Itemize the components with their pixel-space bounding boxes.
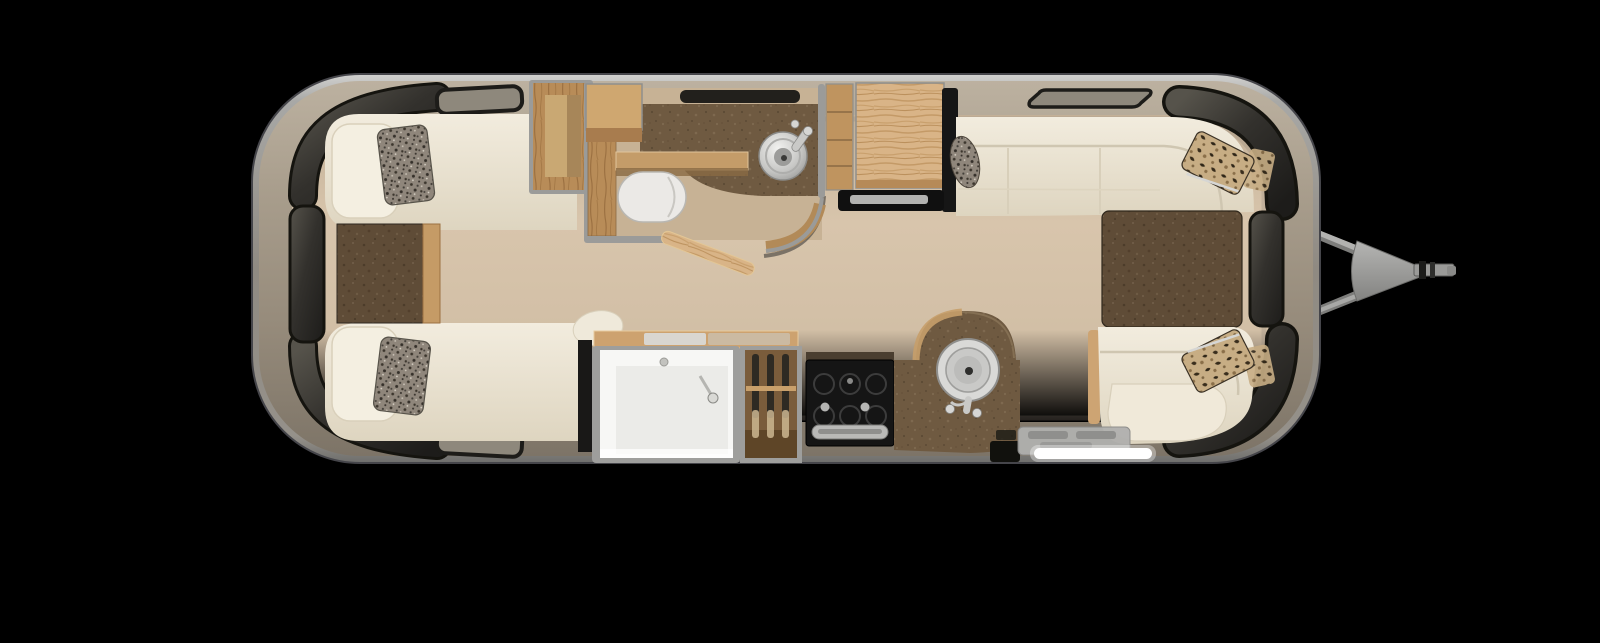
kitchen-faucet-handle-b xyxy=(973,409,982,418)
stove-emblem xyxy=(847,378,853,384)
jack-detail xyxy=(1430,262,1435,278)
bathroom-bottom-wall xyxy=(584,236,668,243)
nightstand-wood-edge xyxy=(423,224,440,323)
coupler-ball-mount xyxy=(1447,266,1456,275)
stove-knob-1 xyxy=(821,403,830,412)
bathroom-cabinet-face xyxy=(586,128,642,142)
roof-vent-rear-top xyxy=(436,86,522,114)
shower-drain xyxy=(660,358,668,366)
closet-brush-tip-3 xyxy=(782,410,789,438)
front-center-window xyxy=(1250,212,1283,326)
bathroom-right-wall xyxy=(818,84,825,198)
speckle-pillow-bottom xyxy=(373,336,432,416)
pantry-shelves xyxy=(826,84,853,190)
counter-glass-panel xyxy=(708,333,790,345)
lavatory-drain xyxy=(781,155,787,161)
shower-wand-head xyxy=(708,393,718,403)
roof-vent-front xyxy=(1029,90,1151,107)
bathroom-wood-shelf xyxy=(616,152,748,170)
floor-mat-small xyxy=(996,430,1016,440)
kitchen-faucet-handle-a xyxy=(946,405,955,414)
tongue-jack xyxy=(1419,261,1426,279)
stove-knob-2 xyxy=(861,403,870,412)
sofa-seam-horizontal xyxy=(958,189,1160,190)
closet-rod xyxy=(746,386,796,391)
rear-center-window xyxy=(290,206,324,342)
floor-mat-dark xyxy=(990,441,1020,462)
entry-step-cutout-1 xyxy=(1028,431,1068,439)
bathroom-window-slot xyxy=(680,90,800,103)
closet-brush-tip-1 xyxy=(752,410,759,438)
refrigerator-cabinet xyxy=(856,83,944,188)
shower-side-window-gap xyxy=(578,340,592,452)
toilet xyxy=(618,172,686,222)
speckle-pillow-top xyxy=(377,124,436,206)
oven-handle-inset xyxy=(818,429,882,434)
entry-step-cutout-2 xyxy=(1076,431,1116,439)
shower-floor xyxy=(616,366,728,454)
refrigerator-seam xyxy=(856,180,944,188)
kitchen-sink-drain xyxy=(965,367,973,375)
counter-mat xyxy=(644,333,706,345)
shower-bottom-glow xyxy=(600,449,733,458)
nightstand xyxy=(337,224,423,323)
tv-panel-silver-strip xyxy=(850,195,928,204)
dinette-table xyxy=(1102,211,1242,327)
trailer-floorplan-svg xyxy=(0,0,1600,643)
closet-brush-tip-2 xyxy=(767,410,774,438)
faucet-handle-a xyxy=(804,127,813,136)
bathroom-cabinet-top xyxy=(586,84,642,130)
dinette-wood-trim xyxy=(1088,330,1100,424)
galley-roadside xyxy=(826,83,958,212)
faucet-handle-b xyxy=(791,120,799,128)
wardrobe-interior-shadow xyxy=(567,95,581,177)
entry-step-led xyxy=(1034,448,1152,459)
floorplan-stage xyxy=(0,0,1600,643)
